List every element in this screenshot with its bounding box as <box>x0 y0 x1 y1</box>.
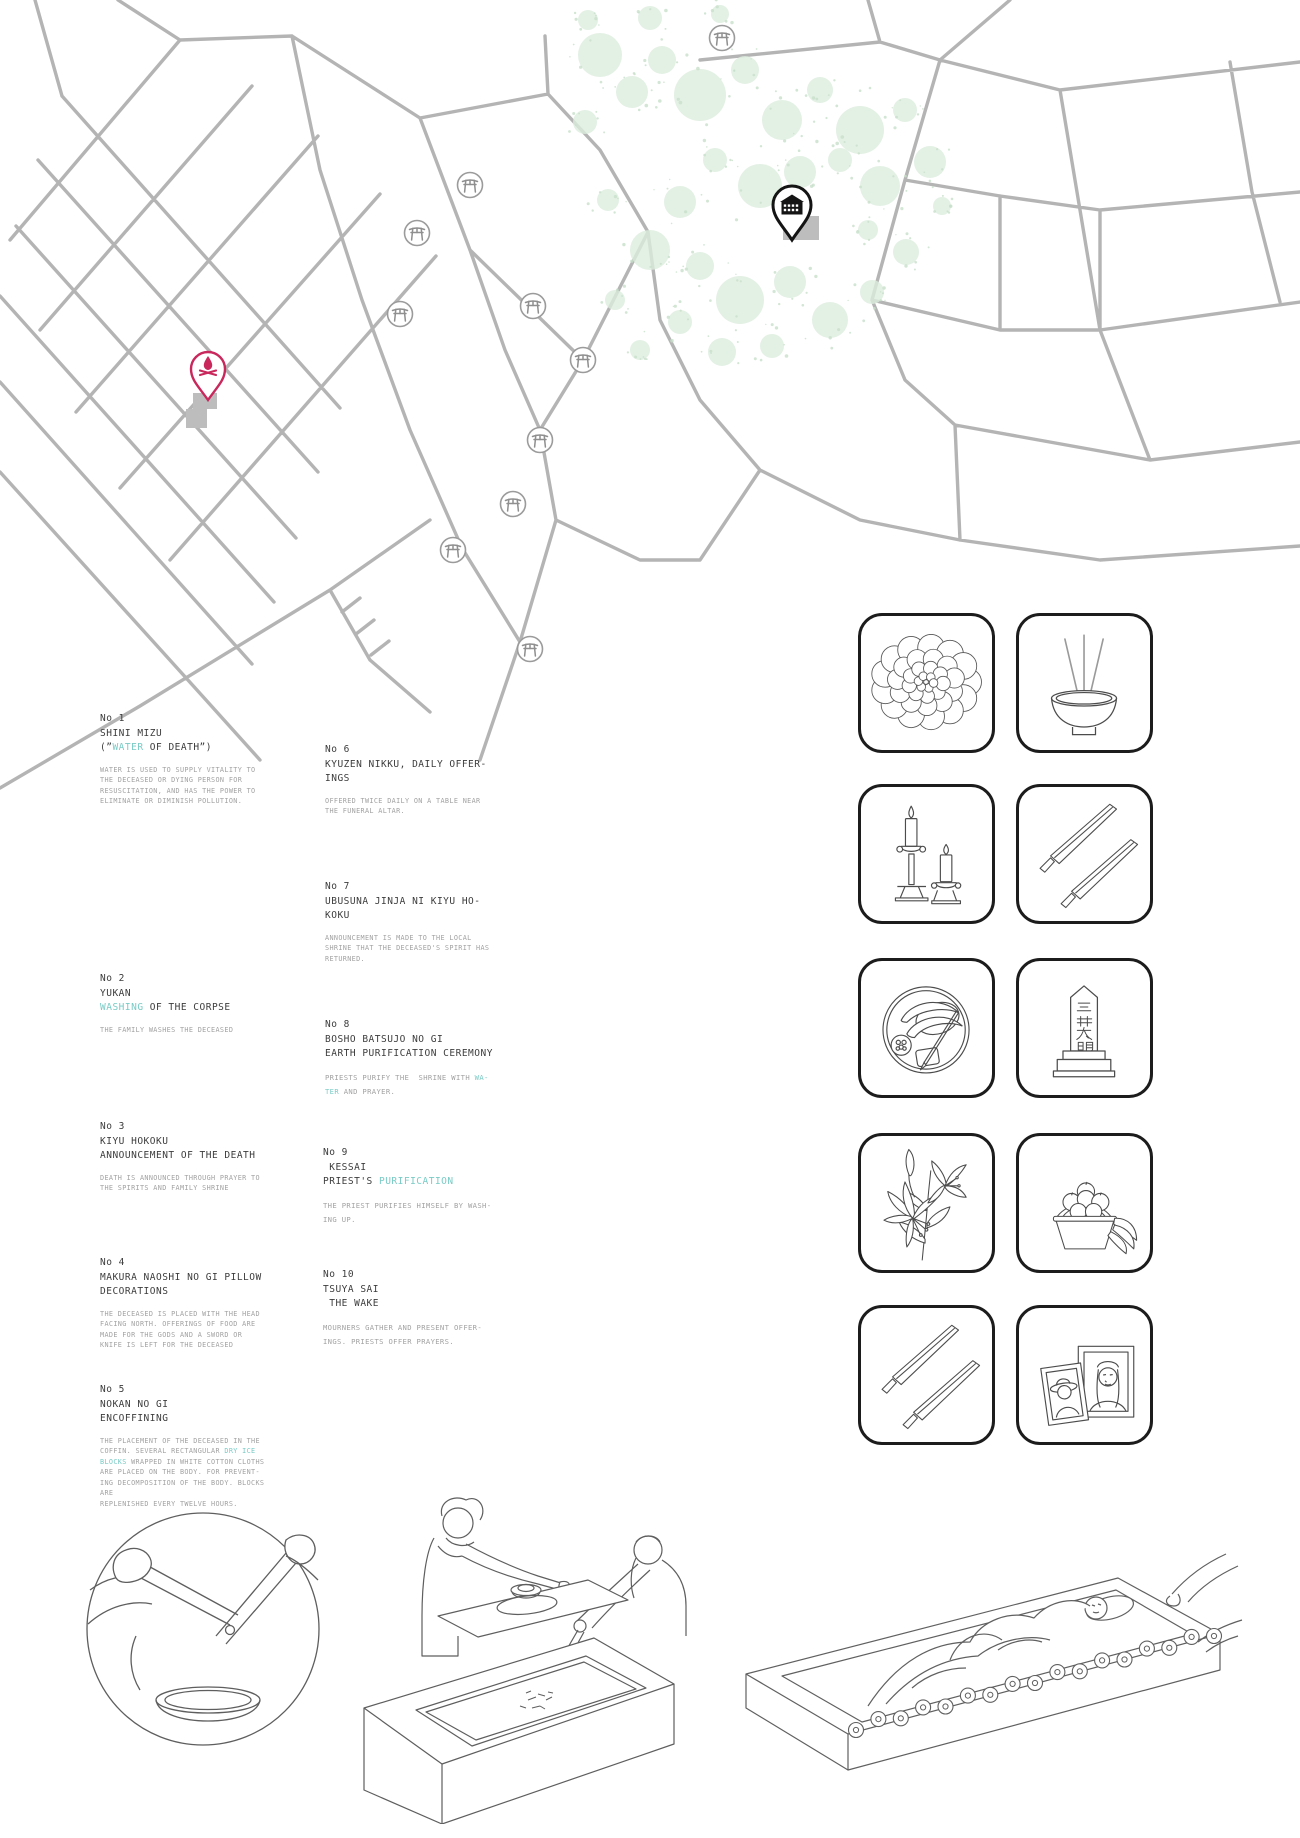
poster-page: No 1SHINI MIZU(”WATER OF DEATH”)WATER IS… <box>0 0 1300 1838</box>
text-segment: THE DECEASED OR DYING PERSON FOR <box>100 776 242 784</box>
step-number: No 7 <box>325 880 489 895</box>
step-title: TSUYA SAI THE WAKE <box>323 1283 482 1312</box>
text-segment: PRIEST'S <box>323 1176 379 1187</box>
step-title: KESSAIPRIEST'S PURIFICATION <box>323 1161 491 1190</box>
highlighted-text: WATER <box>112 742 143 753</box>
text-segment: KIYU HOKOKU <box>100 1136 168 1147</box>
step-body: MOURNERS GATHER AND PRESENT OFFER-INGS. … <box>323 1321 482 1349</box>
kotsuage-chopsticks-closeup <box>80 1494 326 1766</box>
text-segment: COFFIN. SEVERAL RECTANGULAR <box>100 1447 224 1455</box>
text-segment: MAKURA NAOSHI NO GI PILLOW <box>100 1272 262 1283</box>
step-title: UBUSUNA JINJA NI KIYU HO-KOKU <box>325 895 489 924</box>
text-segment: OF DEATH”) <box>144 742 212 753</box>
step-body: OFFERED TWICE DAILY ON A TABLE NEARTHE F… <box>325 796 487 817</box>
text-segment: SHRINE THAT THE DECEASED'S SPIRIT HAS <box>325 944 489 952</box>
step-number: No 2 <box>100 972 233 987</box>
text-segment: (” <box>100 742 112 753</box>
step-body: ANNOUNCEMENT IS MADE TO THE LOCALSHRINE … <box>325 933 489 965</box>
icon-box-incense-bowl <box>1016 613 1153 753</box>
ritual-knives-icon <box>1019 787 1150 921</box>
icon-box-knives-2 <box>858 1305 995 1445</box>
candlesticks-icon <box>861 787 992 921</box>
step-body: WATER IS USED TO SUPPLY VITALITY TOTHE D… <box>100 765 255 807</box>
step-body: PRIESTS PURIFY THE SHRINE WITH WA-TER AN… <box>325 1071 493 1099</box>
text-segment: ANNOUNCEMENT IS MADE TO THE LOCAL <box>325 934 472 942</box>
text-segment: YUKAN <box>100 988 131 999</box>
text-segment: THE DECEASED IS PLACED WITH THE HEAD <box>100 1310 260 1318</box>
highlighted-text: TER <box>325 1087 339 1096</box>
ritual-step-7: No 7UBUSUNA JINJA NI KIYU HO-KOKUANNOUNC… <box>325 880 489 964</box>
step-number: No 1 <box>100 712 255 727</box>
text-segment: NOKAN NO GI <box>100 1399 168 1410</box>
step-body: THE FAMILY WASHES THE DECEASED <box>100 1025 233 1036</box>
text-segment: ING UP. <box>323 1215 356 1224</box>
text-segment: RESUSCITATION, AND HAS THE POWER TO <box>100 787 255 795</box>
step-title: SHINI MIZU(”WATER OF DEATH”) <box>100 727 255 756</box>
memorial-portraits-icon <box>1019 1308 1150 1442</box>
text-segment: ING DECOMPOSITION OF THE BODY. BLOCKS <box>100 1479 264 1487</box>
text-segment: MADE FOR THE GODS AND A SWORD OR <box>100 1331 242 1339</box>
offering-tray-icon <box>861 961 992 1095</box>
icon-box-candlesticks <box>858 784 995 924</box>
step-number: No 4 <box>100 1256 262 1271</box>
text-segment: TSUYA SAI <box>323 1284 379 1295</box>
ritual-step-10: No 10TSUYA SAI THE WAKEMOURNERS GATHER A… <box>323 1268 482 1349</box>
text-segment: INGS <box>325 773 350 784</box>
step-body: THE PRIEST PURIFIES HIMSELF BY WASH-ING … <box>323 1199 491 1227</box>
text-segment: INGS. PRIESTS OFFER PRAYERS. <box>323 1337 454 1346</box>
text-segment: WRAPPED IN WHITE COTTON CLOTHS <box>127 1458 265 1466</box>
text-segment: FACING NORTH. OFFERINGS OF FOOD ARE <box>100 1320 255 1328</box>
text-segment: THE PLACEMENT OF THE DECEASED IN THE <box>100 1437 260 1445</box>
text-segment: ARE PLACED ON THE BODY. FOR PREVENT- <box>100 1468 260 1476</box>
text-segment: THE SPIRITS AND FAMILY SHRINE <box>100 1184 229 1192</box>
text-segment: WATER IS USED TO SUPPLY VITALITY TO <box>100 766 255 774</box>
step-title: KYUZEN NIKKU, DAILY OFFER-INGS <box>325 758 487 787</box>
icon-box-fruit-basket <box>1016 1133 1153 1273</box>
step-number: No 10 <box>323 1268 482 1283</box>
icon-box-knives <box>1016 784 1153 924</box>
highlighted-text: PURIFICATION <box>379 1176 454 1187</box>
icon-box-chrysanthemum <box>858 613 995 753</box>
text-segment: OFFERED TWICE DAILY ON A TABLE NEAR <box>325 797 480 805</box>
grave-marker-icon <box>1019 961 1150 1095</box>
ritual-step-2: No 2YUKANWASHING OF THE CORPSETHE FAMILY… <box>100 972 233 1035</box>
text-segment: KYUZEN NIKKU, DAILY OFFER- <box>325 759 487 770</box>
encoffined-body-with-flowers <box>698 1492 1245 1804</box>
ritual-step-8: No 8BOSHO BATSUJO NO GIEARTH PURIFICATIO… <box>325 1018 493 1099</box>
step-title: NOKAN NO GIENCOFFINING <box>100 1398 264 1427</box>
text-segment: THE WAKE <box>323 1298 379 1309</box>
step-number: No 8 <box>325 1018 493 1033</box>
lily-icon <box>861 1136 992 1270</box>
ritual-step-3: No 3KIYU HOKOKUANNOUNCEMENT OF THE DEATH… <box>100 1120 260 1194</box>
text-segment: ELIMINATE OR DIMINISH POLLUTION. <box>100 797 242 805</box>
text-segment: ANNOUNCEMENT OF THE DEATH <box>100 1150 256 1161</box>
text-segment: THE FAMILY WASHES THE DECEASED <box>100 1026 233 1034</box>
text-segment: OF THE CORPSE <box>144 1002 231 1013</box>
fruit-basket-icon <box>1019 1136 1150 1270</box>
step-number: No 6 <box>325 743 487 758</box>
icon-box-grave-marker <box>1016 958 1153 1098</box>
text-segment: RETURNED. <box>325 955 365 963</box>
step-number: No 5 <box>100 1383 264 1398</box>
text-segment: KNIFE IS LEFT FOR THE DECEASED <box>100 1341 233 1349</box>
step-body: THE DECEASED IS PLACED WITH THE HEADFACI… <box>100 1309 262 1351</box>
text-segment: UBUSUNA JINJA NI KIYU HO- <box>325 896 481 907</box>
ritual-knives-icon <box>861 1308 992 1442</box>
text-segment: MOURNERS GATHER AND PRESENT OFFER- <box>323 1323 482 1332</box>
text-segment: THE FUNERAL ALTAR. <box>325 807 405 815</box>
bone-picking-ceremony-table <box>342 1486 694 1824</box>
ritual-step-9: No 9 KESSAIPRIEST'S PURIFICATIONTHE PRIE… <box>323 1146 491 1227</box>
text-segment: EARTH PURIFICATION CEREMONY <box>325 1048 493 1059</box>
highlighted-text: WA- <box>475 1073 489 1082</box>
text-segment: THE PRIEST PURIFIES HIMSELF BY WASH- <box>323 1201 491 1210</box>
icon-box-lily <box>858 1133 995 1273</box>
step-title: KIYU HOKOKUANNOUNCEMENT OF THE DEATH <box>100 1135 260 1164</box>
step-body: DEATH IS ANNOUNCED THROUGH PRAYER TOTHE … <box>100 1173 260 1194</box>
step-title: BOSHO BATSUJO NO GIEARTH PURIFICATION CE… <box>325 1033 493 1062</box>
text-segment: AND PRAYER. <box>339 1087 395 1096</box>
highlighted-text: WASHING <box>100 1002 144 1013</box>
icon-box-offering-tray <box>858 958 995 1098</box>
text-segment: SHINI MIZU <box>100 728 162 739</box>
highlighted-text: DRY ICE <box>224 1447 255 1455</box>
step-title: YUKANWASHING OF THE CORPSE <box>100 987 233 1016</box>
ritual-step-1: No 1SHINI MIZU(”WATER OF DEATH”)WATER IS… <box>100 712 255 807</box>
chrysanthemum-icon <box>861 616 992 750</box>
text-segment: DEATH IS ANNOUNCED THROUGH PRAYER TO <box>100 1174 260 1182</box>
text-segment: PRIESTS PURIFY THE SHRINE WITH <box>325 1073 475 1082</box>
text-segment: KESSAI <box>323 1162 367 1173</box>
step-title: MAKURA NAOSHI NO GI PILLOWDECORATIONS <box>100 1271 262 1300</box>
highlighted-text: BLOCKS <box>100 1458 127 1466</box>
ritual-step-5: No 5NOKAN NO GIENCOFFININGTHE PLACEMENT … <box>100 1383 264 1509</box>
step-number: No 9 <box>323 1146 491 1161</box>
incense-bowl-icon <box>1019 616 1150 750</box>
text-segment: DECORATIONS <box>100 1286 168 1297</box>
ritual-step-6: No 6KYUZEN NIKKU, DAILY OFFER-INGSOFFERE… <box>325 743 487 817</box>
text-segment: BOSHO BATSUJO NO GI <box>325 1034 443 1045</box>
text-segment: KOKU <box>325 910 350 921</box>
ritual-step-4: No 4MAKURA NAOSHI NO GI PILLOWDECORATION… <box>100 1256 262 1351</box>
text-segment: ENCOFFINING <box>100 1413 168 1424</box>
icon-box-portraits <box>1016 1305 1153 1445</box>
step-number: No 3 <box>100 1120 260 1135</box>
